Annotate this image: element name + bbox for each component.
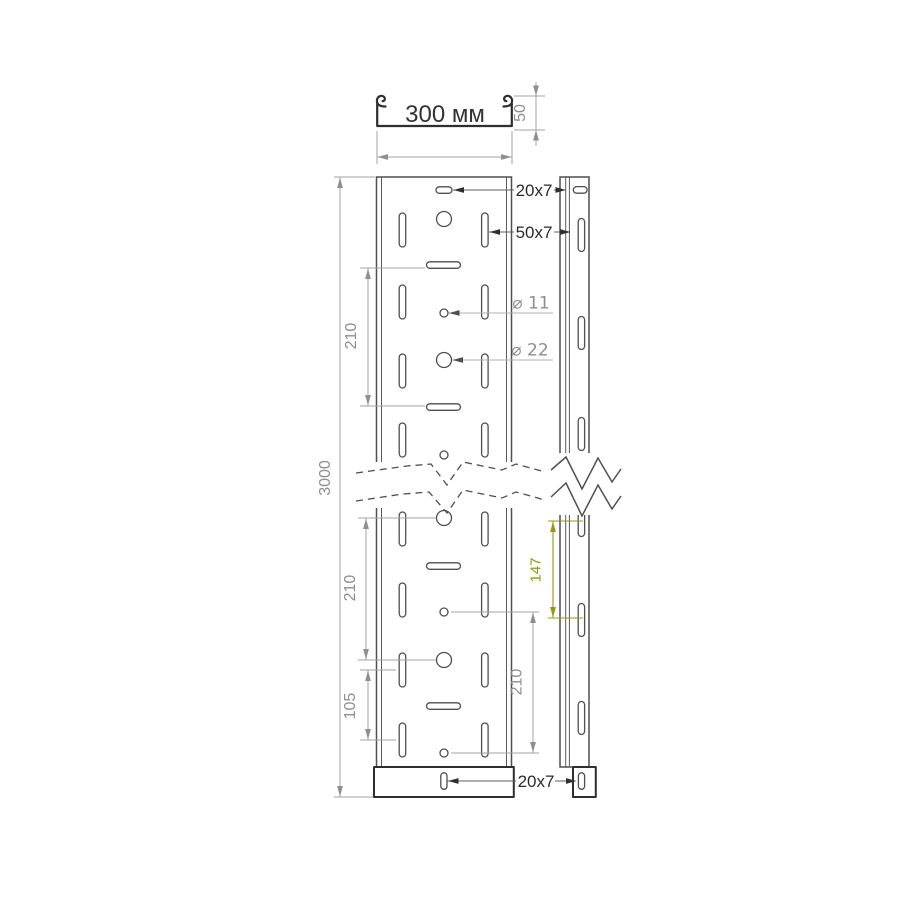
slot-50x7-vertical (399, 583, 406, 617)
leader-arrow (449, 310, 460, 316)
leader-arrow (490, 229, 501, 235)
dim-arrow (550, 522, 556, 533)
profile-width-label: 300 мм (405, 101, 485, 128)
hole-d11 (440, 749, 448, 757)
dimension-300-width (377, 131, 512, 164)
technical-drawing: 300 мм 50 3000 210 (0, 0, 899, 900)
callout-50x7: 50x7 (489, 223, 571, 242)
dim-arrow (365, 269, 371, 280)
hole-d22 (437, 353, 452, 368)
dim-arrow (530, 613, 536, 624)
callout-label: 20x7 (516, 181, 553, 200)
slot-50x7-vertical (482, 285, 489, 319)
dimension-105: 105 (342, 670, 396, 740)
profile-height-label: 50 (512, 104, 529, 122)
slot-50x7-horizontal (427, 404, 461, 411)
pitch-label: 105 (342, 693, 359, 720)
slot-50x7-vertical (399, 512, 406, 546)
dim-arrow (363, 519, 369, 530)
slot-50x7-vertical (482, 723, 489, 757)
hole-d11 (440, 309, 448, 317)
hole-d22 (437, 653, 452, 668)
slot-20x7-top (436, 187, 452, 194)
dimension-210-right: 210 (451, 612, 539, 753)
dim-arrow (501, 154, 512, 160)
dim-arrow (363, 649, 369, 660)
pitch-label: 210 (342, 575, 359, 602)
slot-50x7-vertical (399, 423, 406, 457)
slot-50x7-side (578, 418, 584, 451)
hole-d11 (440, 451, 448, 459)
leader-arrow (454, 187, 465, 193)
slot-50x7-horizontal (427, 703, 461, 710)
dimension-210-lower-left: 210 (342, 518, 436, 660)
slot-50x7-vertical (482, 512, 489, 546)
slot-20x7-side (573, 187, 587, 194)
slot-50x7-vertical (399, 354, 406, 388)
slot-50x7-vertical (399, 285, 406, 319)
leader-arrow (448, 778, 459, 784)
dim-arrow (365, 671, 371, 682)
hole-d22 (437, 511, 452, 526)
slot-20x7-bottom (441, 773, 447, 790)
slot-50x7-vertical (482, 423, 489, 457)
slot-50x7-horizontal (427, 262, 461, 269)
slot-50x7-side (578, 604, 584, 637)
dim-arrow (337, 786, 343, 797)
dim-arrow (533, 130, 539, 141)
drawing-canvas: 300 мм 50 3000 210 (0, 0, 899, 900)
dim-arrow (378, 154, 389, 160)
break-side (549, 453, 623, 516)
slot-50x7-side (578, 219, 584, 252)
callout-d11: ⌀ 11 (449, 294, 554, 316)
hole-d22 (437, 212, 452, 227)
callout-label: ⌀ 22 (511, 341, 548, 361)
cross-section-view: 300 мм 50 (377, 82, 545, 164)
dimension-210-upper: 210 (343, 268, 425, 406)
dim-arrow (530, 742, 536, 753)
dim-arrow (533, 86, 539, 97)
callout-label: ⌀ 11 (512, 294, 549, 314)
callout-label: 50x7 (516, 223, 553, 242)
slot-50x7-horizontal (427, 563, 461, 570)
dim-arrow (365, 729, 371, 740)
leader-arrow (566, 778, 577, 784)
dimension-147-side: 147 (528, 521, 584, 618)
slot-50x7-vertical (399, 723, 406, 757)
slot-50x7-side (578, 702, 584, 735)
dimension-50-height: 50 (512, 82, 545, 146)
slot-50x7-side (578, 317, 584, 350)
pitch-label: 210 (509, 669, 526, 696)
slot-50x7-vertical (482, 213, 489, 247)
leader-arrow (453, 357, 464, 363)
callout-label: 20x7 (518, 772, 555, 791)
slot-50x7-vertical (399, 653, 406, 687)
length-label: 3000 (317, 460, 334, 496)
callout-20x7-bottom: 20x7 (448, 772, 577, 791)
callout-d22: ⌀ 22 (452, 341, 553, 363)
callout-20x7-top: 20x7 (453, 181, 566, 200)
slot-50x7-vertical (482, 354, 489, 388)
slot-50x7-vertical (482, 653, 489, 687)
dim-arrow (365, 395, 371, 406)
pitch-label: 210 (343, 323, 360, 350)
dim-arrow (550, 607, 556, 618)
slot-50x7-vertical (399, 213, 406, 247)
break-front (352, 462, 548, 513)
side-pitch-label: 147 (528, 557, 545, 582)
slot-20x7-side-bottom (578, 773, 584, 790)
hole-d11 (440, 608, 448, 616)
dim-arrow (337, 178, 343, 189)
